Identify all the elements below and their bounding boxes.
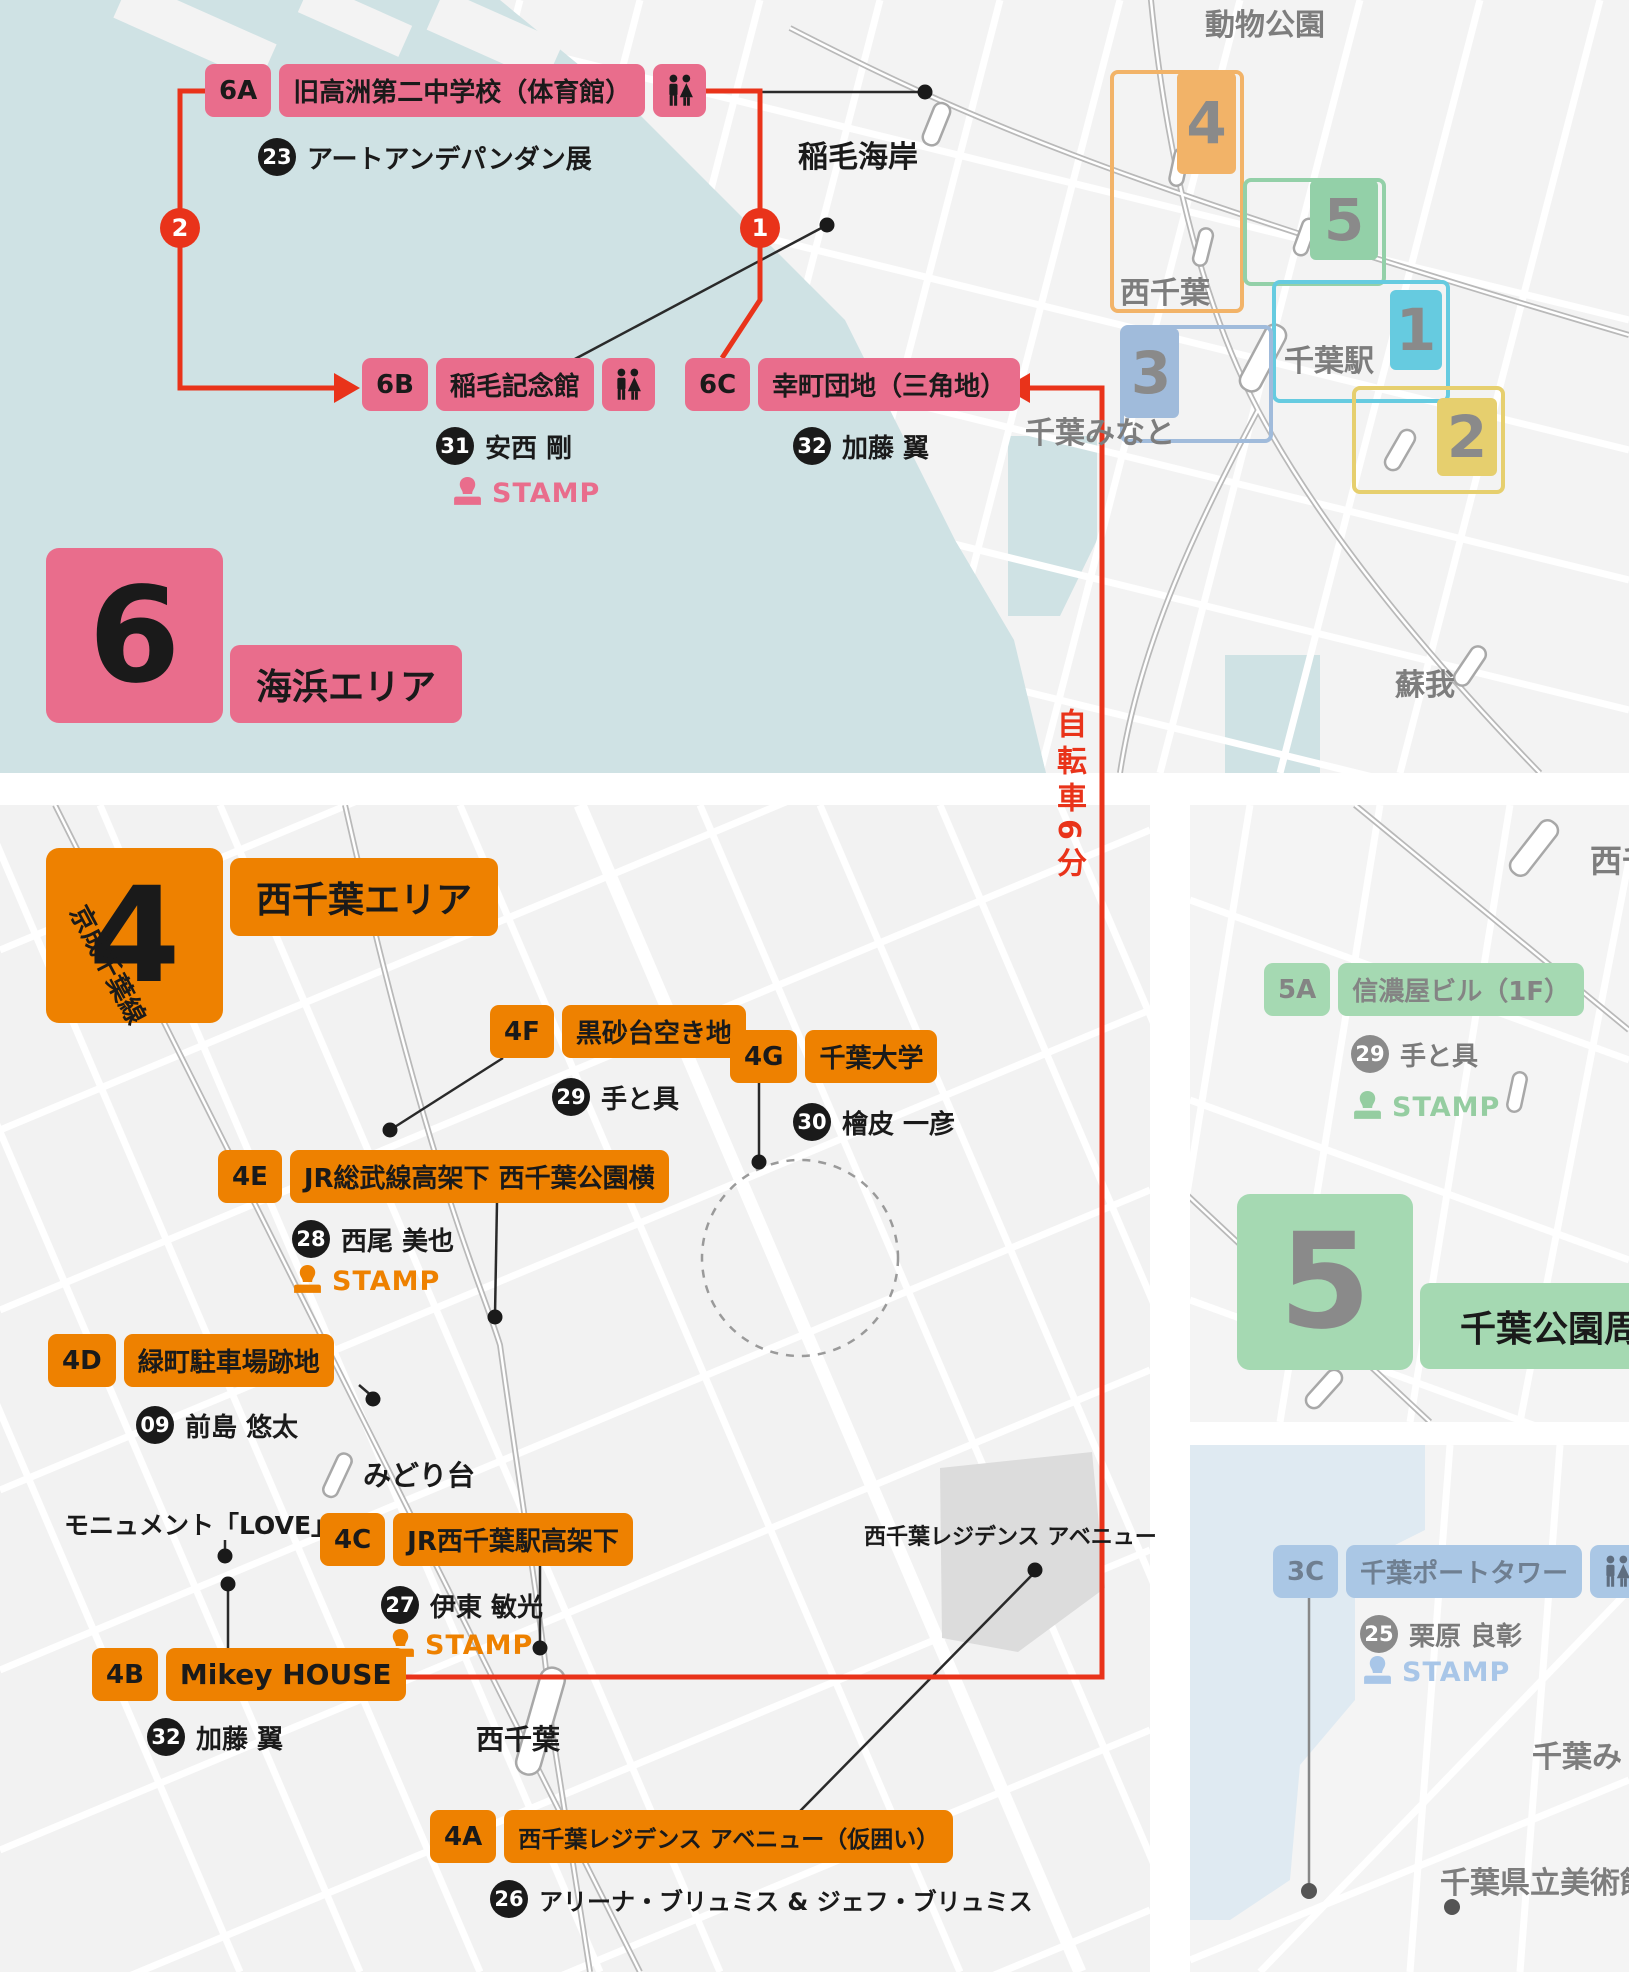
venue-name-5a: 信濃屋ビル（1F） — [1338, 963, 1584, 1016]
toilet-icon — [663, 74, 697, 108]
venue-code-4c: 4C — [320, 1513, 385, 1566]
stamp-label: STAMP — [492, 478, 600, 509]
venue-name-4d: 緑町駐車場跡地 — [124, 1334, 334, 1387]
artist-name: 伊東 敏光 — [430, 1587, 543, 1624]
label-soga: 蘇我 — [1395, 660, 1455, 704]
artist-4f: 29 手と具 — [552, 1078, 679, 1116]
artist-number: 32 — [793, 427, 831, 465]
artist-4g: 30 檜皮 一彦 — [793, 1103, 955, 1141]
venue-code-6b: 6B — [362, 358, 428, 411]
stamp-4c: STAMP — [385, 1628, 533, 1661]
stamp-6b: STAMP — [452, 476, 600, 509]
stamp-icon — [452, 476, 483, 509]
stamp-label: STAMP — [332, 1266, 440, 1297]
venue-name-4c: JR西千葉駅高架下 — [393, 1513, 633, 1566]
venue-name-4e: JR総武線高架下 西千葉公園横 — [290, 1150, 669, 1203]
artist-number: 25 — [1360, 1615, 1398, 1653]
artist-number: 27 — [381, 1586, 419, 1624]
artist-number: 30 — [793, 1103, 831, 1141]
venue-code-4d: 4D — [48, 1334, 116, 1387]
minimap-number-3: 3 — [1123, 328, 1179, 418]
area6-label: 海浜エリア — [230, 645, 462, 723]
festival-map-page: 6A 旧高洲第二中学校（体育館） 23 アートアンデパンダン展 6B 稲毛記念館 — [0, 0, 1629, 1972]
artist-number: 32 — [147, 1718, 185, 1756]
venue-row-4a: 4A 西千葉レジデンス アベニュー（仮囲い） — [430, 1810, 953, 1863]
stamp-label: STAMP — [1392, 1092, 1500, 1123]
area6-number: 6 — [46, 548, 223, 723]
venue-code-6a: 6A — [205, 64, 271, 117]
artist-number: 28 — [292, 1220, 330, 1258]
venue-row-4f: 4F 黒砂台空き地 — [490, 1005, 746, 1058]
toilet-box-3c — [1590, 1545, 1629, 1598]
venue-code-4b: 4B — [92, 1648, 158, 1701]
artist-name: 西尾 美也 — [341, 1221, 454, 1258]
artist-number: 29 — [1351, 1035, 1389, 1073]
stamp-5a: STAMP — [1352, 1090, 1500, 1123]
artist-number: 29 — [552, 1078, 590, 1116]
stamp-icon — [1352, 1090, 1383, 1123]
label-monument-love: モニュメント「LOVE」 — [64, 1506, 336, 1542]
venue-code-4a: 4A — [430, 1810, 496, 1863]
venue-row-4b: 4B Mikey HOUSE — [92, 1648, 406, 1701]
label-chibaminato: 千葉みなと — [1025, 408, 1175, 452]
artist-number: 26 — [490, 1880, 528, 1918]
venue-code-4g: 4G — [730, 1030, 797, 1083]
artist-name: 手と具 — [601, 1079, 679, 1116]
toilet-box-6b — [602, 358, 655, 411]
artist-4c: 27 伊東 敏光 — [381, 1586, 543, 1624]
venue-code-4f: 4F — [490, 1005, 554, 1058]
venue-row-6c: 6C 幸町団地（三角地） — [685, 358, 1020, 411]
venue-row-4d: 4D 緑町駐車場跡地 — [48, 1334, 334, 1387]
label-nishichiba-cut: 西千 — [1590, 836, 1629, 882]
venue-code-3c: 3C — [1273, 1545, 1338, 1598]
venue-code-5a: 5A — [1264, 963, 1330, 1016]
minimap-number-1: 1 — [1390, 290, 1442, 370]
label-inage-kaigan: 稲毛海岸 — [798, 132, 918, 176]
artist-4b: 32 加藤 翼 — [147, 1718, 283, 1756]
artist-name: 手と具 — [1400, 1036, 1478, 1073]
route-circle-2: 2 — [160, 208, 200, 248]
venue-row-5a: 5A 信濃屋ビル（1F） — [1264, 963, 1584, 1016]
venue-row-4c: 4C JR西千葉駅高架下 — [320, 1513, 633, 1566]
artist-number: 09 — [136, 1406, 174, 1444]
venue-row-4e: 4E JR総武線高架下 西千葉公園横 — [218, 1150, 669, 1203]
minimap-number-2: 2 — [1437, 398, 1497, 476]
artist-4e: 28 西尾 美也 — [292, 1220, 454, 1258]
artist-number: 31 — [436, 427, 474, 465]
artist-name: 檜皮 一彦 — [842, 1104, 955, 1141]
venue-code-6c: 6C — [685, 358, 750, 411]
artist-name: 栗原 良彰 — [1409, 1616, 1522, 1653]
stamp-icon — [292, 1264, 323, 1297]
minimap-box-2: 2 — [1352, 386, 1505, 494]
minimap-number-5: 5 — [1310, 180, 1378, 260]
venue-name-6c: 幸町団地（三角地） — [758, 358, 1020, 411]
stamp-label: STAMP — [425, 1630, 533, 1661]
stamp-label: STAMP — [1402, 1657, 1510, 1688]
toilet-icon — [611, 368, 645, 402]
venue-name-4f: 黒砂台空き地 — [562, 1005, 746, 1058]
label-zoo: 動物公園 — [1205, 0, 1325, 44]
venue-row-4g: 4G 千葉大学 — [730, 1030, 937, 1083]
artist-4d: 09 前島 悠太 — [136, 1406, 298, 1444]
artist-6c: 32 加藤 翼 — [793, 427, 929, 465]
area4-label: 西千葉エリア — [230, 858, 498, 936]
artist-6b: 31 安西 剛 — [436, 427, 572, 465]
venue-name-3c: 千葉ポートタワー — [1346, 1545, 1582, 1598]
venue-name-6a: 旧高洲第二中学校（体育館） — [279, 64, 645, 117]
area5-number: 5 — [1237, 1194, 1413, 1370]
artist-6a: 23 アートアンデパンダン展 — [258, 138, 592, 176]
venue-name-4g: 千葉大学 — [805, 1030, 937, 1083]
artist-name: 加藤 翼 — [842, 428, 929, 465]
label-prefectural-museum: 千葉県立美術館 — [1440, 1858, 1629, 1902]
venue-row-3c: 3C 千葉ポートタワー — [1273, 1545, 1629, 1598]
label-residence-avenue: 西千葉レジデンス アベニュー — [864, 1519, 1157, 1551]
artist-3c: 25 栗原 良彰 — [1360, 1615, 1522, 1653]
artist-name: アリーナ・ブリュミス & ジェフ・ブリュミス — [539, 1882, 1033, 1917]
venue-name-4a: 西千葉レジデンス アベニュー（仮囲い） — [504, 1810, 953, 1863]
venue-row-6a: 6A 旧高洲第二中学校（体育館） — [205, 64, 706, 117]
toilet-box-6a — [653, 64, 706, 117]
venue-code-4e: 4E — [218, 1150, 282, 1203]
bike-route-note: 自転車6分 — [1046, 708, 1090, 884]
venue-row-6b: 6B 稲毛記念館 — [362, 358, 655, 411]
stamp-3c: STAMP — [1362, 1655, 1510, 1688]
route-circle-1: 1 — [740, 208, 780, 248]
toilet-icon — [1600, 1555, 1629, 1589]
label-midoridai: みどり台 — [363, 1454, 475, 1494]
area5-label: 千葉公園周 — [1420, 1283, 1629, 1369]
venue-name-6b: 稲毛記念館 — [436, 358, 594, 411]
venue-name-4b: Mikey HOUSE — [166, 1648, 406, 1701]
artist-4a: 26 アリーナ・ブリュミス & ジェフ・ブリュミス — [490, 1880, 1033, 1918]
stamp-icon — [1362, 1655, 1393, 1688]
artist-name: 加藤 翼 — [196, 1719, 283, 1756]
label-nishichiba-station: 西千葉 — [476, 1718, 560, 1758]
artist-name: 安西 剛 — [485, 428, 572, 465]
artist-name: 前島 悠太 — [185, 1407, 298, 1444]
label-chibaminato-cut: 千葉み — [1532, 1732, 1622, 1776]
minimap-number-4: 4 — [1177, 72, 1236, 174]
artist-name: アートアンデパンダン展 — [307, 139, 592, 176]
label-chiba-station: 千葉駅 — [1284, 336, 1374, 380]
minimap-box-5: 5 — [1243, 178, 1386, 286]
artist-5a: 29 手と具 — [1351, 1035, 1478, 1073]
label-nishichiba-mini: 西千葉 — [1120, 268, 1210, 312]
stamp-4e: STAMP — [292, 1264, 440, 1297]
artist-number: 23 — [258, 138, 296, 176]
